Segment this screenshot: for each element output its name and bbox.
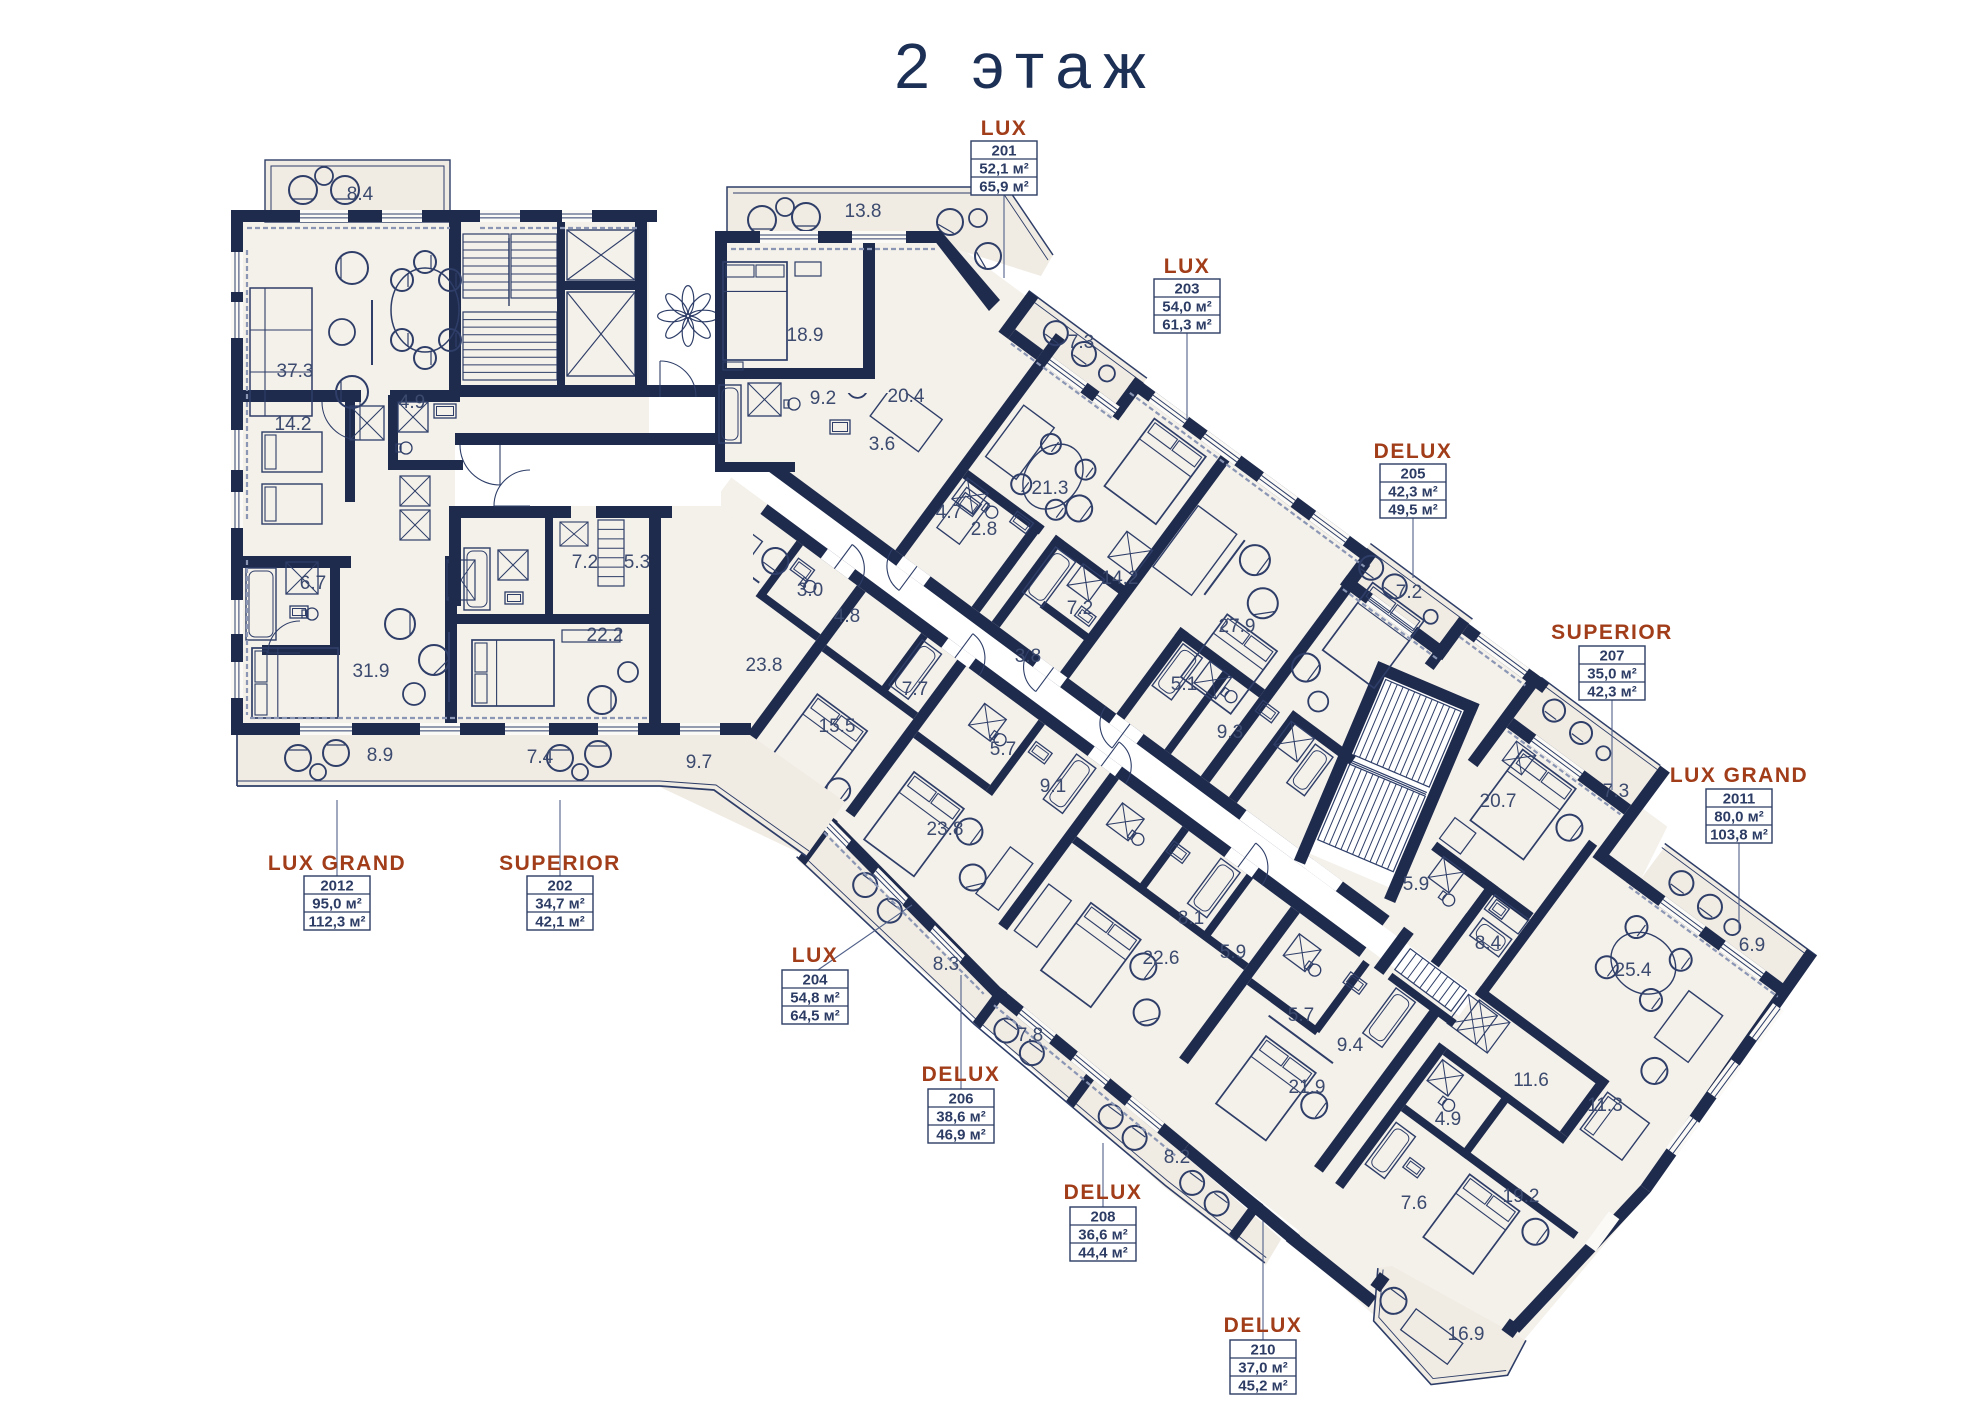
svg-text:7.8: 7.8 — [1017, 1025, 1043, 1046]
svg-text:16.9: 16.9 — [1448, 1324, 1485, 1345]
svg-text:SUPERIOR: SUPERIOR — [499, 852, 621, 875]
svg-text:205: 205 — [1400, 466, 1425, 483]
svg-text:4.7: 4.7 — [936, 502, 962, 523]
svg-text:54,8 м²: 54,8 м² — [790, 990, 839, 1007]
svg-text:7.4: 7.4 — [527, 747, 554, 768]
svg-text:207: 207 — [1599, 648, 1624, 665]
svg-text:LUX: LUX — [981, 117, 1028, 140]
svg-text:23.8: 23.8 — [927, 819, 964, 840]
svg-text:6.9: 6.9 — [1739, 935, 1765, 956]
svg-text:5.9: 5.9 — [1220, 942, 1246, 963]
svg-text:206: 206 — [948, 1091, 973, 1108]
svg-text:42,1 м²: 42,1 м² — [535, 914, 584, 931]
svg-text:22.6: 22.6 — [1143, 948, 1180, 969]
svg-text:6.7: 6.7 — [300, 573, 326, 594]
svg-text:37.3: 37.3 — [277, 361, 314, 382]
svg-text:34,7 м²: 34,7 м² — [535, 896, 584, 913]
svg-text:9.4: 9.4 — [1337, 1035, 1364, 1056]
svg-text:14.2: 14.2 — [275, 414, 312, 435]
svg-text:11.3: 11.3 — [1587, 1095, 1623, 1116]
svg-text:5.7: 5.7 — [990, 739, 1016, 760]
svg-text:5.9: 5.9 — [1403, 874, 1429, 895]
svg-text:203: 203 — [1174, 281, 1199, 298]
svg-text:LUX: LUX — [792, 944, 839, 967]
svg-text:4.9: 4.9 — [1435, 1109, 1461, 1130]
svg-text:4.9: 4.9 — [399, 392, 425, 413]
svg-text:5.3: 5.3 — [624, 552, 650, 573]
svg-text:20.7: 20.7 — [1480, 791, 1517, 812]
svg-text:52,1 м²: 52,1 м² — [979, 161, 1028, 178]
svg-text:2011: 2011 — [1723, 791, 1756, 808]
svg-text:22.2: 22.2 — [587, 625, 624, 646]
svg-text:2012: 2012 — [320, 878, 353, 895]
svg-text:18.9: 18.9 — [787, 325, 824, 346]
svg-text:8.4: 8.4 — [347, 184, 374, 205]
svg-text:4.8: 4.8 — [834, 606, 860, 627]
svg-text:21.3: 21.3 — [1032, 478, 1069, 499]
svg-text:9.7: 9.7 — [686, 752, 712, 773]
svg-text:LUX GRAND: LUX GRAND — [1670, 764, 1808, 787]
svg-text:42,3 м²: 42,3 м² — [1587, 684, 1636, 701]
svg-text:LUX: LUX — [1164, 255, 1211, 278]
svg-text:7.2: 7.2 — [1396, 582, 1422, 603]
svg-text:15.5: 15.5 — [819, 716, 856, 737]
svg-text:2.8: 2.8 — [971, 519, 997, 540]
svg-text:2 этаж: 2 этаж — [894, 30, 1158, 102]
svg-text:49,5 м²: 49,5 м² — [1388, 502, 1437, 519]
svg-text:38,6 м²: 38,6 м² — [936, 1109, 985, 1126]
svg-text:7.6: 7.6 — [1401, 1193, 1427, 1214]
svg-text:20.4: 20.4 — [888, 386, 925, 407]
svg-text:7.3: 7.3 — [1068, 332, 1094, 353]
svg-text:54,0 м²: 54,0 м² — [1162, 299, 1211, 316]
svg-text:13.8: 13.8 — [845, 201, 882, 222]
svg-text:112,3 м²: 112,3 м² — [309, 914, 366, 931]
svg-text:31.9: 31.9 — [353, 661, 390, 682]
svg-text:202: 202 — [547, 878, 572, 895]
svg-text:DELUX: DELUX — [1224, 1314, 1303, 1337]
svg-text:65,9 м²: 65,9 м² — [979, 179, 1028, 196]
svg-text:46,9 м²: 46,9 м² — [936, 1127, 985, 1144]
svg-text:95,0 м²: 95,0 м² — [312, 896, 361, 913]
svg-text:27.9: 27.9 — [1219, 616, 1256, 637]
svg-text:3.0: 3.0 — [797, 580, 823, 601]
svg-text:35,0 м²: 35,0 м² — [1587, 666, 1636, 683]
svg-text:7.3: 7.3 — [1603, 781, 1629, 802]
svg-text:11.6: 11.6 — [1513, 1070, 1549, 1091]
svg-text:9.1: 9.1 — [1040, 776, 1066, 797]
svg-text:8.2: 8.2 — [1164, 1147, 1190, 1168]
svg-text:3.6: 3.6 — [869, 434, 895, 455]
svg-text:LUX GRAND: LUX GRAND — [268, 852, 406, 875]
svg-text:103,8 м²: 103,8 м² — [1710, 827, 1768, 844]
svg-text:44,4 м²: 44,4 м² — [1078, 1245, 1127, 1262]
svg-text:7.2: 7.2 — [1067, 598, 1093, 619]
svg-text:SUPERIOR: SUPERIOR — [1551, 621, 1673, 644]
svg-text:45,2 м²: 45,2 м² — [1238, 1378, 1287, 1395]
svg-text:8.1: 8.1 — [1178, 908, 1204, 929]
svg-text:36,6 м²: 36,6 м² — [1078, 1227, 1127, 1244]
svg-text:DELUX: DELUX — [1064, 1181, 1143, 1204]
svg-text:21.9: 21.9 — [1289, 1077, 1326, 1098]
svg-text:201: 201 — [991, 143, 1016, 160]
svg-text:64,5 м²: 64,5 м² — [790, 1008, 839, 1025]
svg-text:8.9: 8.9 — [367, 745, 393, 766]
svg-text:3.8: 3.8 — [1015, 646, 1041, 667]
svg-text:204: 204 — [802, 972, 828, 989]
svg-text:25.4: 25.4 — [1615, 960, 1652, 981]
svg-text:37,0 м²: 37,0 м² — [1238, 1360, 1287, 1377]
svg-text:9.2: 9.2 — [810, 388, 836, 409]
svg-text:DELUX: DELUX — [1374, 440, 1453, 463]
svg-text:210: 210 — [1250, 1342, 1275, 1359]
svg-text:61,3 м²: 61,3 м² — [1162, 317, 1211, 334]
svg-text:8.4: 8.4 — [1475, 933, 1502, 954]
svg-text:5.7: 5.7 — [1288, 1005, 1314, 1026]
svg-text:DELUX: DELUX — [922, 1063, 1001, 1086]
svg-text:9.3: 9.3 — [1217, 722, 1243, 743]
svg-text:7.7: 7.7 — [902, 679, 928, 700]
svg-text:42,3 м²: 42,3 м² — [1388, 484, 1437, 501]
svg-text:23.8: 23.8 — [746, 655, 783, 676]
svg-text:5.1: 5.1 — [1171, 674, 1197, 695]
svg-text:7.2: 7.2 — [572, 552, 598, 573]
svg-text:80,0 м²: 80,0 м² — [1714, 809, 1763, 826]
svg-text:19.2: 19.2 — [1503, 1186, 1540, 1207]
svg-text:208: 208 — [1090, 1209, 1115, 1226]
svg-text:14.2: 14.2 — [1102, 568, 1139, 589]
svg-text:8.3: 8.3 — [933, 954, 959, 975]
